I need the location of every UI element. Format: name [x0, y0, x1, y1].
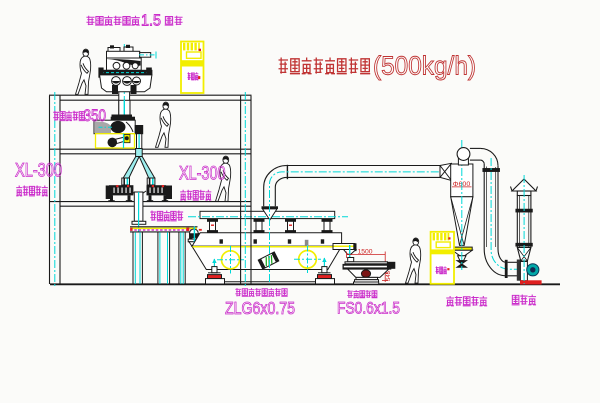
svg-text:350: 350	[84, 106, 107, 125]
svg-text:FS0.6x1.5: FS0.6x1.5	[337, 299, 400, 318]
svg-text:XL-300: XL-300	[179, 163, 226, 185]
svg-text:ZLG6x0.75: ZLG6x0.75	[225, 298, 295, 318]
svg-text:XL-300: XL-300	[15, 160, 62, 182]
svg-text:(500kg/h): (500kg/h)	[373, 51, 476, 81]
svg-text:1.5: 1.5	[141, 13, 161, 30]
svg-text:545: 545	[386, 271, 392, 281]
svg-text:1500: 1500	[358, 249, 374, 256]
